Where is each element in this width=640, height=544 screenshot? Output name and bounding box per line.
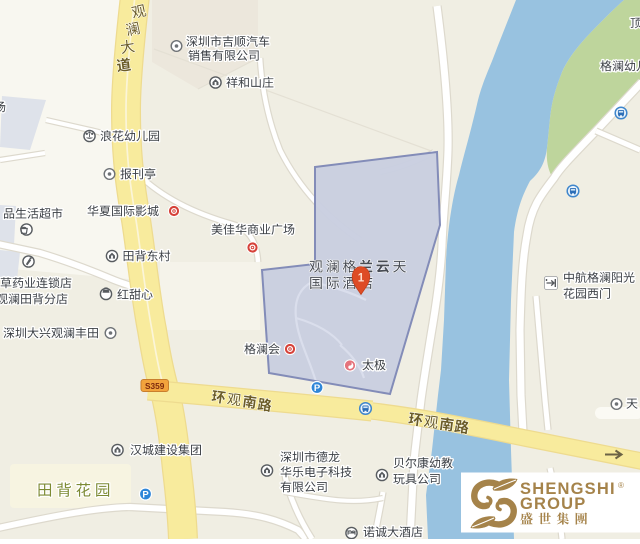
svg-text:P: P xyxy=(314,383,321,394)
svg-text:P: P xyxy=(142,489,149,500)
svg-text:S359: S359 xyxy=(145,381,165,391)
svg-text:®: ® xyxy=(618,481,624,490)
svg-text:1: 1 xyxy=(358,272,365,284)
svg-text:GROUP: GROUP xyxy=(520,495,587,513)
